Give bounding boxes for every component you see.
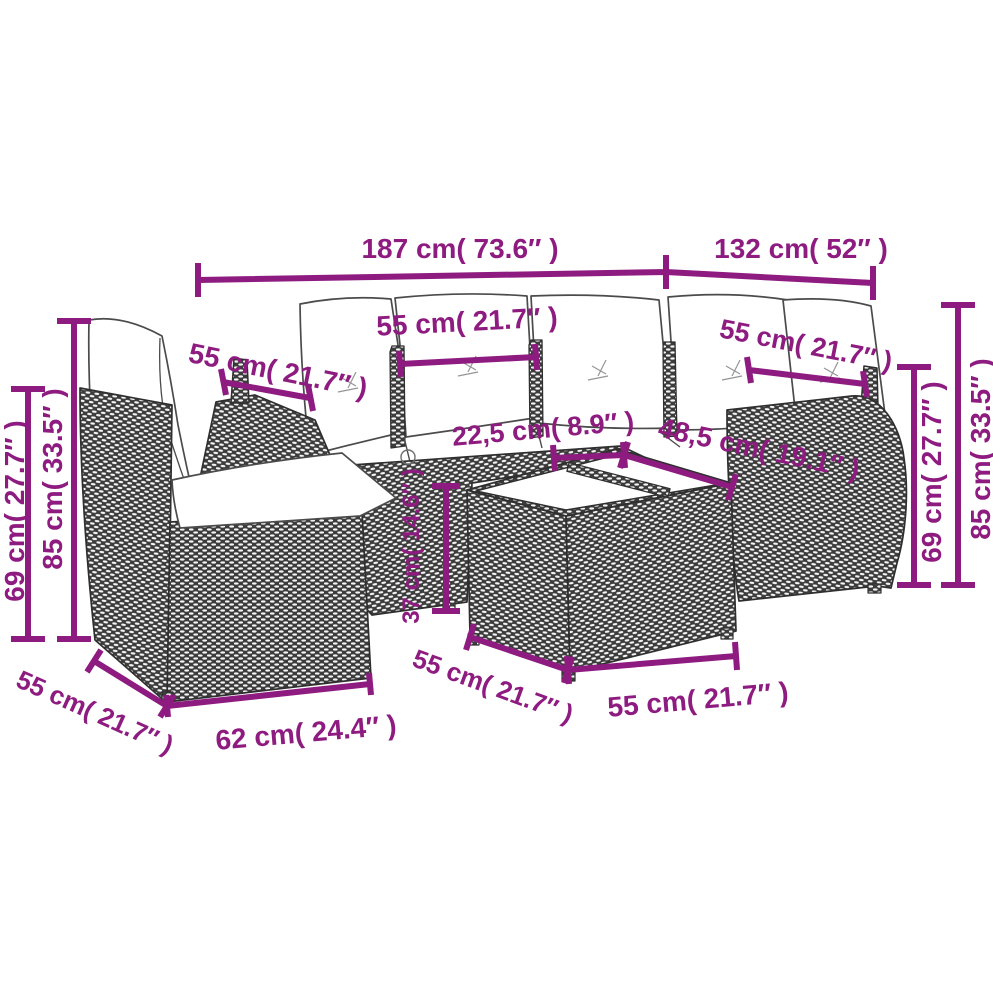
svg-text:132 cm( 52″ ): 132 cm( 52″ ) xyxy=(714,233,888,264)
svg-text:85 cm( 33.5″ ): 85 cm( 33.5″ ) xyxy=(37,388,68,570)
svg-text:69 cm( 27.7″ ): 69 cm( 27.7″ ) xyxy=(0,420,30,602)
svg-text:85 cm( 33.5″ ): 85 cm( 33.5″ ) xyxy=(965,358,993,540)
svg-text:187 cm( 73.6″ ): 187 cm( 73.6″ ) xyxy=(361,233,558,264)
svg-text:69 cm( 27.7″ ): 69 cm( 27.7″ ) xyxy=(916,381,947,563)
svg-text:37 cm( 14.6″ ): 37 cm( 14.6″ ) xyxy=(398,468,425,624)
